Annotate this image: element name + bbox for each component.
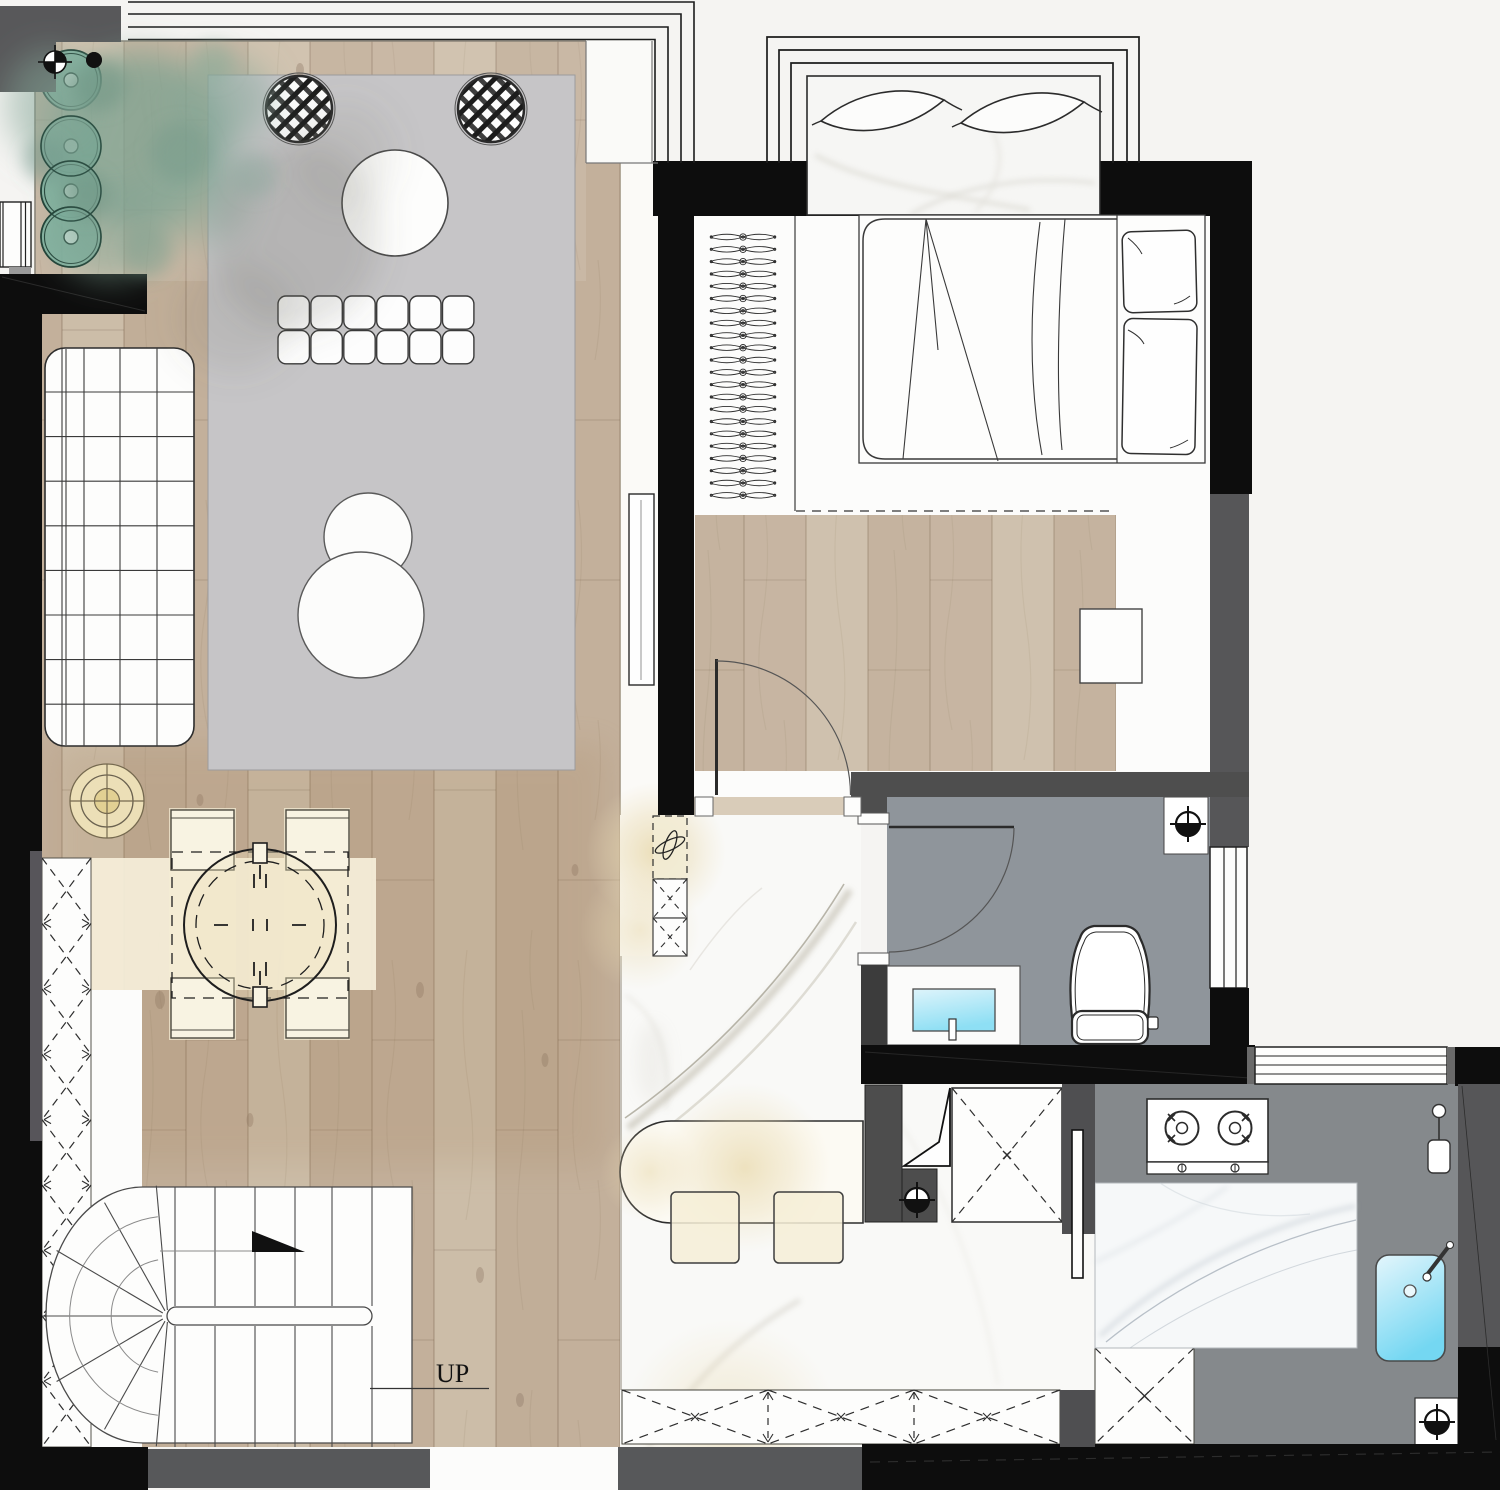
svg-text:UP: UP <box>436 1359 469 1388</box>
